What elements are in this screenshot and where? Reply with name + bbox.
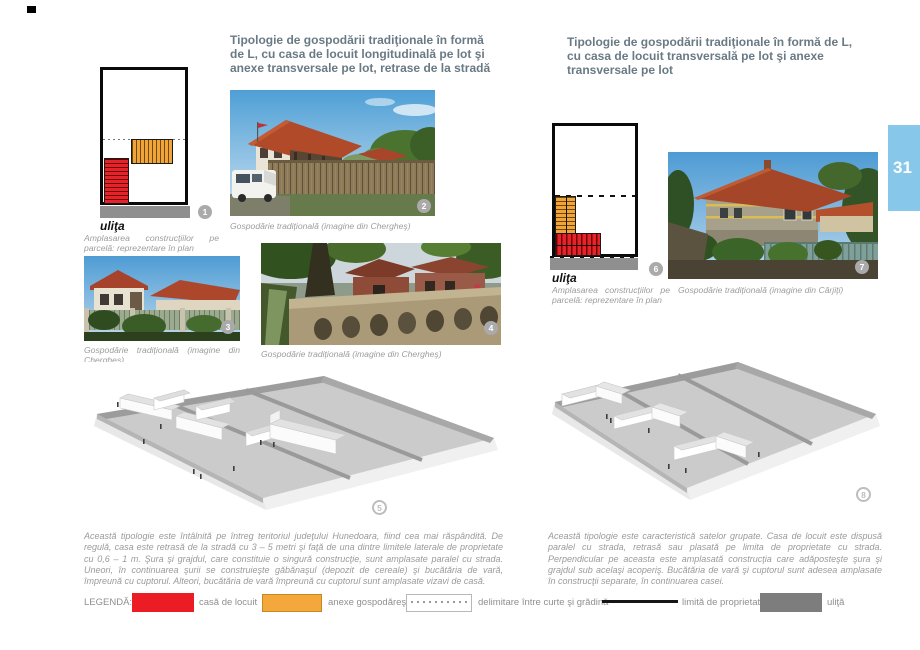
body-paragraph-left: Această tipologie este întâlnită pe într…: [84, 531, 503, 587]
legend-title: LEGENDĂ:: [84, 597, 132, 608]
photo-illustration: [668, 152, 878, 279]
figure-number-badge: 7: [855, 260, 869, 274]
rendering-illustration: [84, 362, 504, 510]
dotted-line: [411, 601, 467, 603]
legend-swatch-anexe: [262, 594, 322, 612]
plan-caption-left: Amplasarea construcţiilor pe parcelă: re…: [84, 233, 219, 254]
photo-illustration: [84, 256, 240, 341]
photo-traditional-house-cherghes-wall: [261, 243, 501, 345]
rendering-illustration: [540, 352, 885, 500]
figure-number-badge: 1: [198, 205, 212, 219]
document-page: Tipologie de gospodării tradiţionale în …: [0, 0, 920, 650]
anexe-rect: [131, 139, 173, 164]
axonometric-rendering-longitudinal: [84, 362, 504, 510]
photo-traditional-house-carjiti: [668, 152, 878, 279]
site-plan-diagram-left: [100, 67, 188, 205]
figure-number-badge: 6: [649, 262, 663, 276]
print-registration-mark: [27, 6, 36, 13]
legend-swatch-delimitare: [406, 594, 472, 612]
axonometric-rendering-transversal: [540, 352, 885, 500]
photo-illustration: [230, 90, 435, 216]
site-plan-diagram-right: [552, 123, 638, 257]
photo-caption: Gospodărie tradiţională (imagine din Che…: [230, 221, 435, 231]
photo-traditional-house-cherghes-garden: [84, 256, 240, 341]
street-label: uliţa: [552, 271, 577, 285]
photo-caption: Gospodărie tradiţională (imagine din Câr…: [678, 285, 878, 295]
figure-number-badge: 4: [484, 321, 498, 335]
figure-number-badge: 3: [221, 320, 235, 334]
anexe-divider: [566, 197, 567, 235]
figure-number-badge: 5: [372, 500, 387, 515]
legend-label: uliţă: [827, 597, 844, 608]
photo-illustration: [261, 243, 501, 345]
casa-divider: [556, 245, 600, 246]
legend-label: limită de proprietate: [682, 597, 765, 608]
legend-swatch-casa: [132, 593, 194, 612]
section-heading-right: Tipologie de gospodării tradiţionale în …: [567, 36, 869, 78]
casa-rect: [555, 233, 601, 256]
page-number-tab: 31: [888, 125, 920, 211]
legend-swatch-ulita: [760, 593, 822, 612]
legend-label: anexe gospodăreşti: [328, 597, 411, 608]
figure-number-badge: 2: [417, 199, 431, 213]
street-bar: [550, 258, 638, 270]
anexe-rect: [555, 196, 576, 236]
legend-swatch-limita: [602, 600, 678, 603]
street-label: uliţa: [100, 219, 125, 233]
casa-rect: [104, 158, 129, 204]
legend-label: casă de locuit: [199, 597, 257, 608]
legend-label: delimitare între curte şi grădină: [478, 597, 608, 608]
body-paragraph-right: Această tipologie este caracteristică sa…: [548, 531, 882, 587]
photo-traditional-house-cherghes-street: [230, 90, 435, 216]
section-heading-left: Tipologie de gospodării tradiţionale în …: [230, 34, 494, 76]
photo-caption: Gospodărie tradiţională (imagine din Che…: [261, 349, 501, 359]
plan-caption-right: Amplasarea construcţiilor pe parcelă: re…: [552, 285, 670, 306]
street-bar: [100, 206, 190, 218]
figure-number-badge: 8: [856, 487, 871, 502]
